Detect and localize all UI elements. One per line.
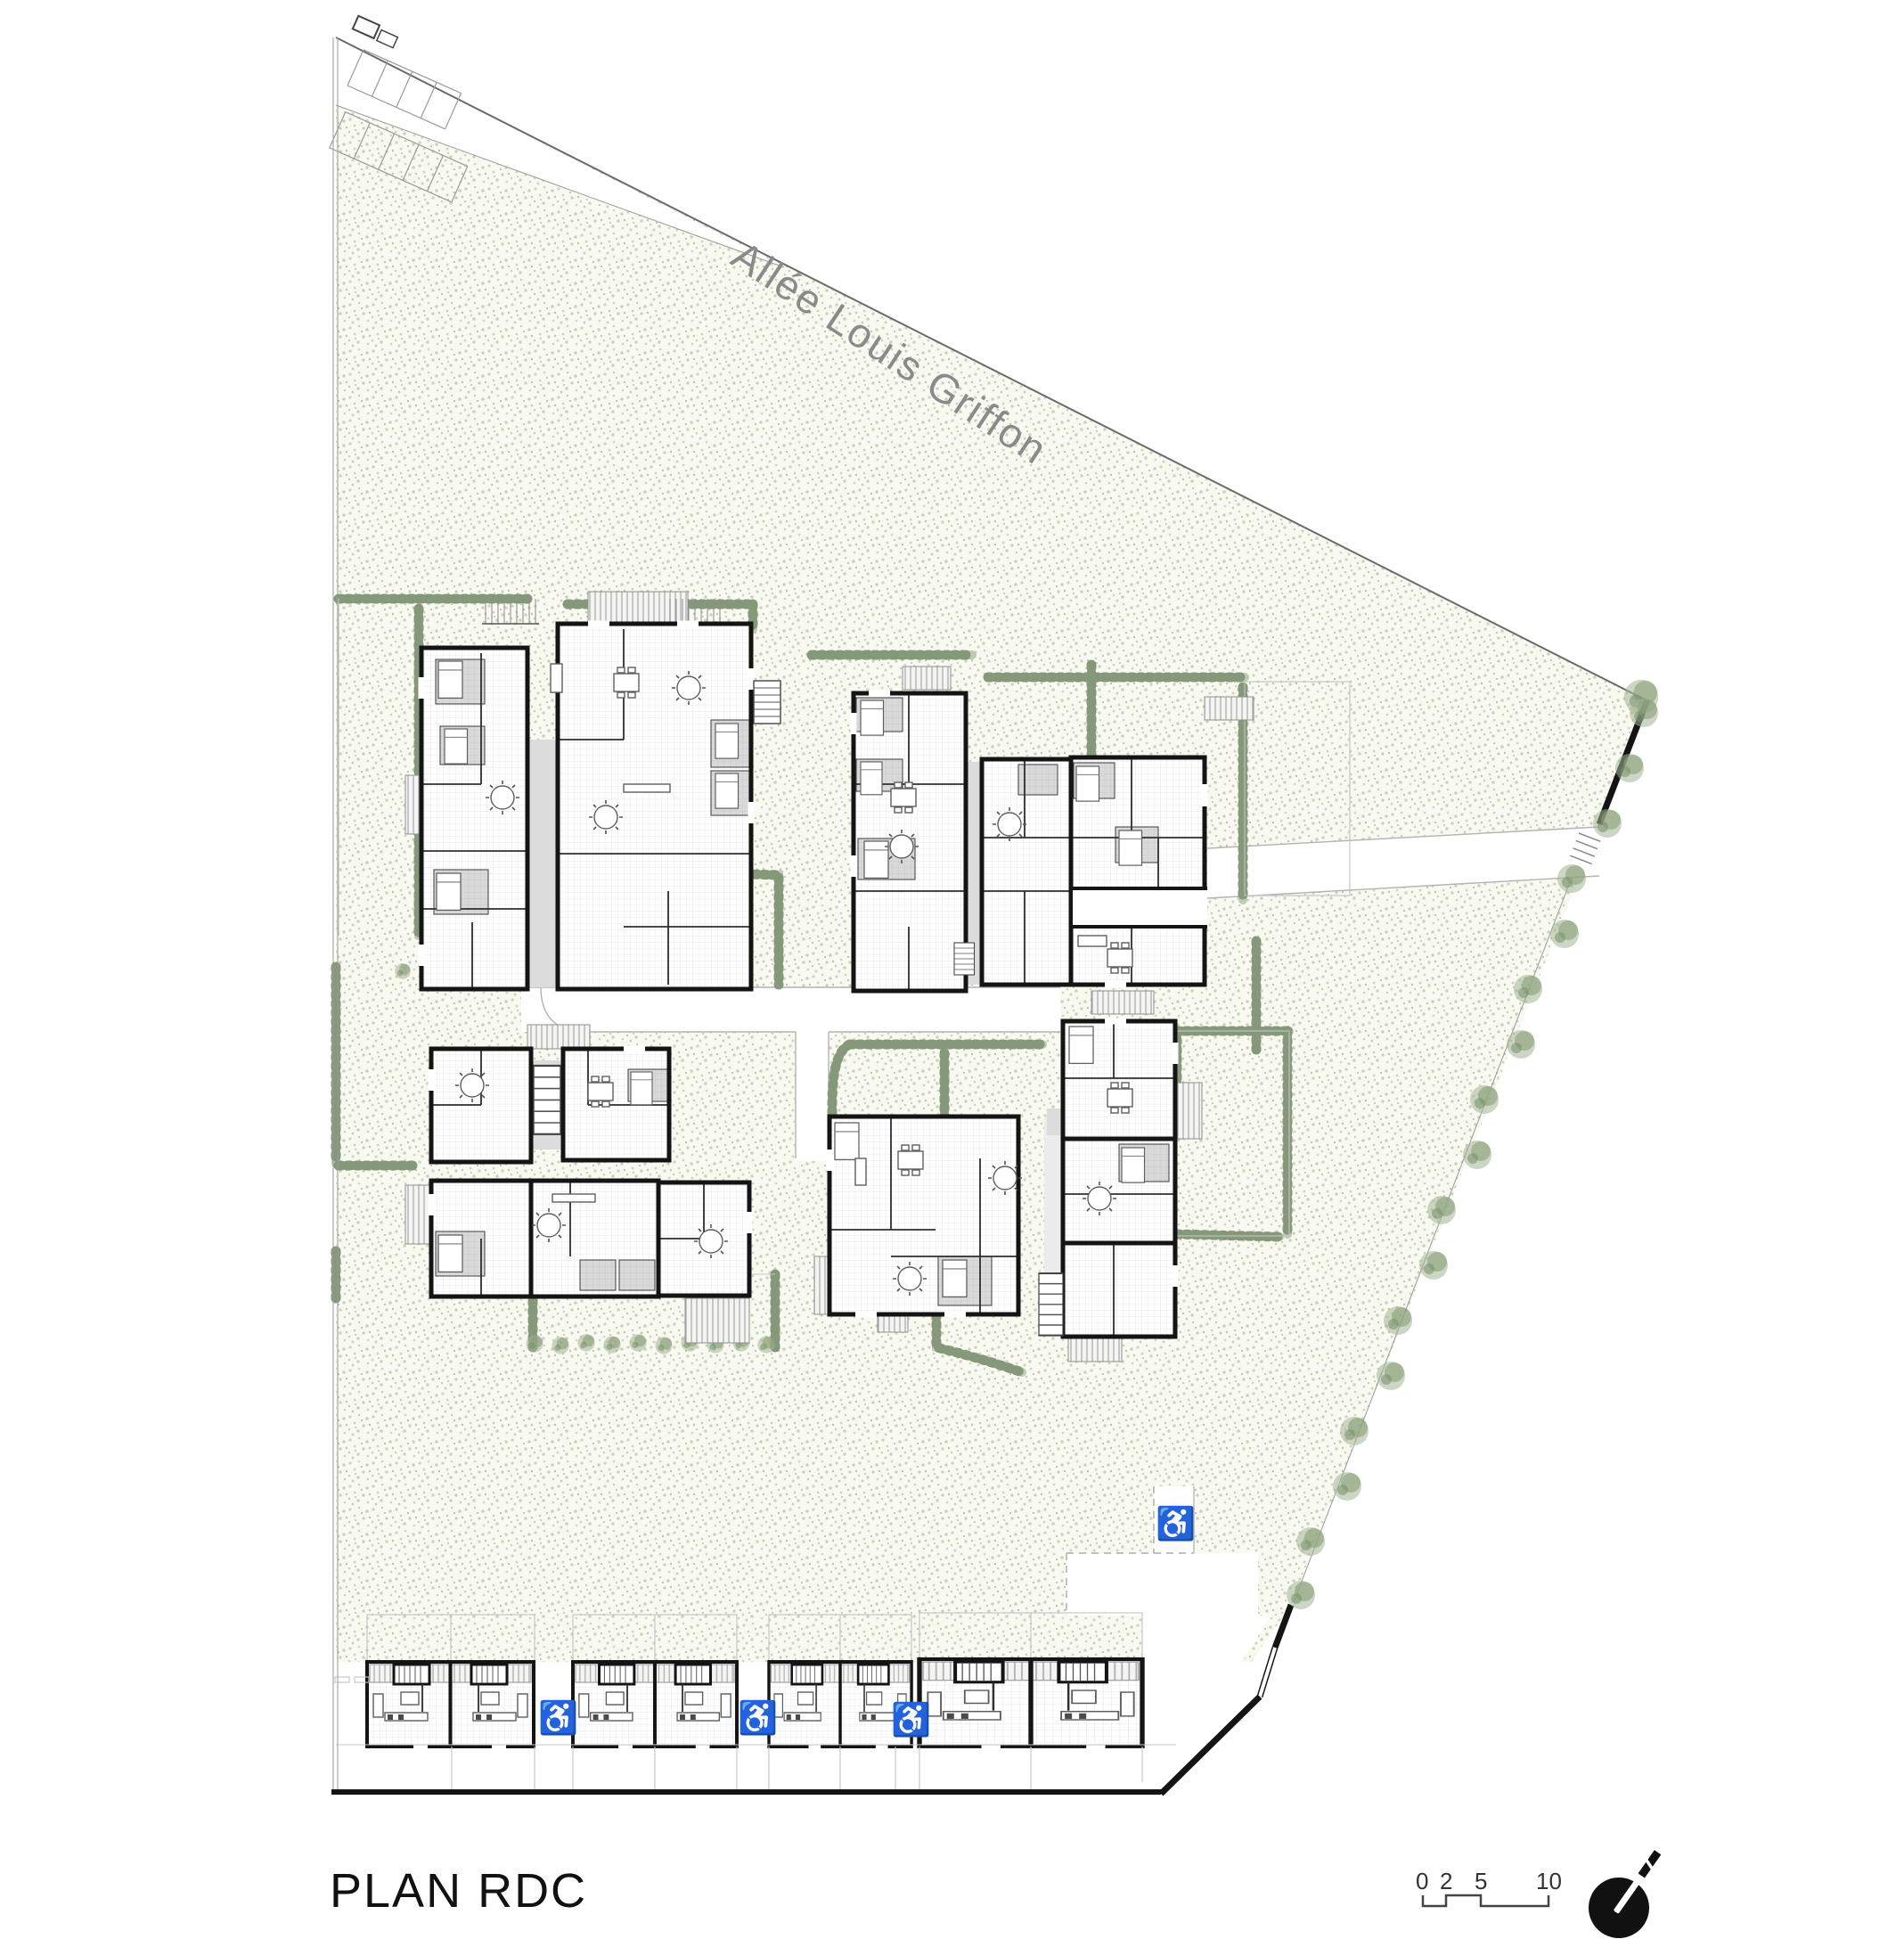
scale-tick-2: 2: [1440, 1868, 1452, 1894]
north-arrow-icon: [1589, 1848, 1664, 1938]
accessible-icon: ♿: [738, 1699, 778, 1736]
corner-sheds: [352, 16, 399, 48]
scale-tick-10: 10: [1536, 1868, 1562, 1894]
plan-sheet: ♿ ♿ ♿ ♿ Allée Louis Griffon PLAN RDC 0 2…: [0, 0, 1904, 1939]
accessible-icon: ♿: [891, 1701, 931, 1738]
site-plan-canvas: ♿ ♿ ♿ ♿ Allée Louis Griffon PLAN RDC 0 2…: [0, 0, 1904, 1939]
building-cluster-a: [405, 592, 780, 989]
scale-bar: 0 2 5 10: [1416, 1868, 1562, 1906]
scale-tick-0: 0: [1416, 1868, 1428, 1894]
drawing-title: PLAN RDC: [330, 1864, 587, 1918]
central-path: [521, 987, 1060, 1032]
accessible-icon: ♿: [538, 1699, 578, 1736]
accessible-icon: ♿: [1156, 1505, 1196, 1542]
scale-tick-5: 5: [1475, 1868, 1487, 1894]
